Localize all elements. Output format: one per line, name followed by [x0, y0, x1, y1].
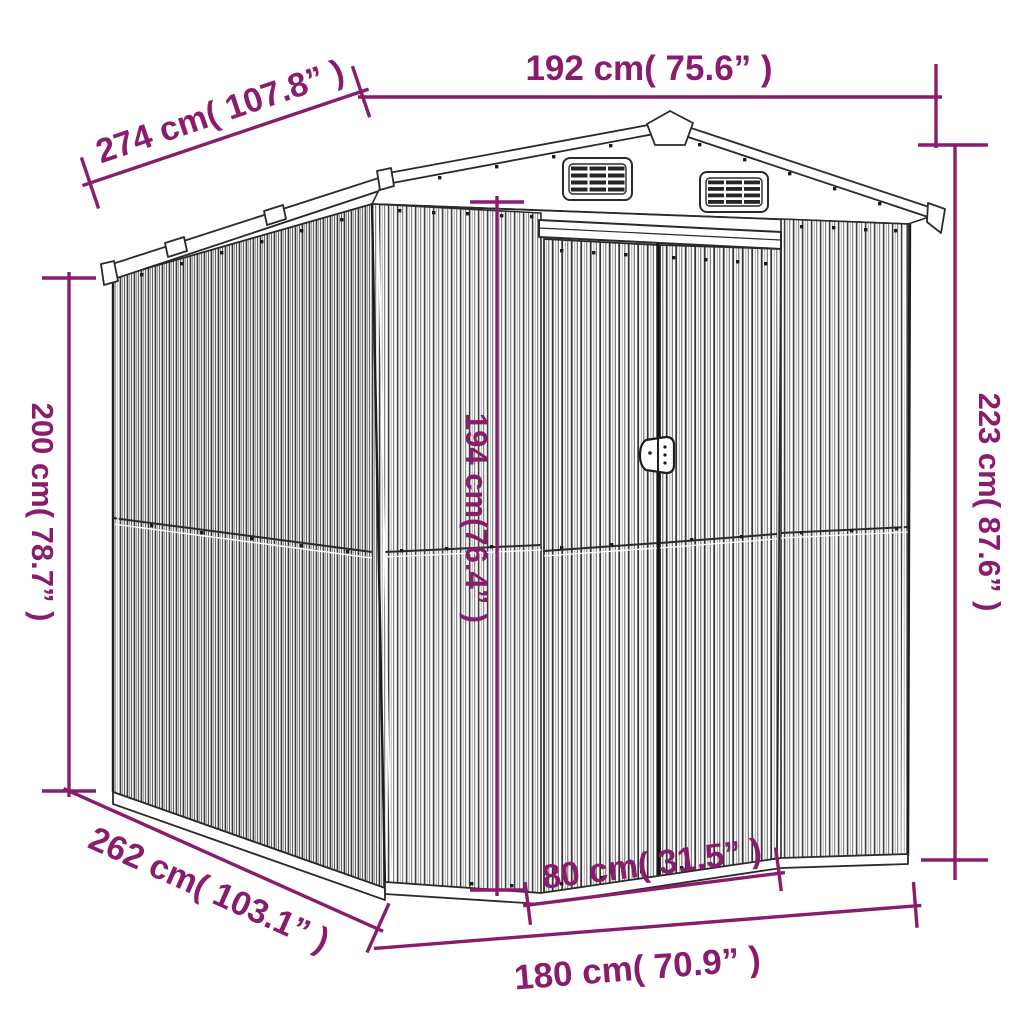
tick — [352, 66, 369, 117]
product-dimension-diagram: 192 cm( 75.6” ) 274 cm( 107.8” ) 200 cm(… — [0, 0, 1024, 1024]
gable-vent-left — [563, 158, 632, 200]
shed-dimension-drawing: 192 cm( 75.6” ) 274 cm( 107.8” ) 200 cm(… — [0, 0, 1024, 1024]
dimension-left-height-label: 200 cm( 78.7” ) — [25, 403, 60, 622]
dimension-roof-depth: 274 cm( 107.8” ) — [68, 46, 377, 211]
dimension-top-width-label: 192 cm( 75.6” ) — [525, 49, 772, 88]
door-center-gap — [658, 243, 659, 886]
shed-drawing — [101, 111, 945, 904]
dimension-base-width: 180 cm( 70.9” ) — [372, 881, 926, 1008]
gable-vent-right — [700, 172, 768, 212]
dimension-right-height: 223 cm( 87.6” ) — [918, 145, 1007, 880]
roof-apex-cap — [647, 111, 693, 145]
dimension-door-height-label: 194 cm(76.4” ) — [459, 413, 494, 623]
sliding-door-left — [544, 239, 658, 895]
dimension-base-width-label: 180 cm( 70.9” ) — [513, 939, 762, 997]
dimension-roof-depth-label: 274 cm( 107.8” ) — [91, 52, 349, 171]
front-wall-right — [781, 219, 908, 861]
tick — [913, 882, 917, 928]
sliding-door-right — [660, 245, 781, 886]
dimension-right-height-label: 223 cm( 87.6” ) — [972, 393, 1007, 612]
tick — [81, 157, 98, 208]
door-handle — [640, 437, 674, 473]
front-wall-left — [372, 204, 541, 893]
tick — [367, 903, 389, 952]
dimension-left-height: 200 cm( 78.7” ) — [25, 272, 96, 797]
side-wall — [113, 204, 385, 888]
